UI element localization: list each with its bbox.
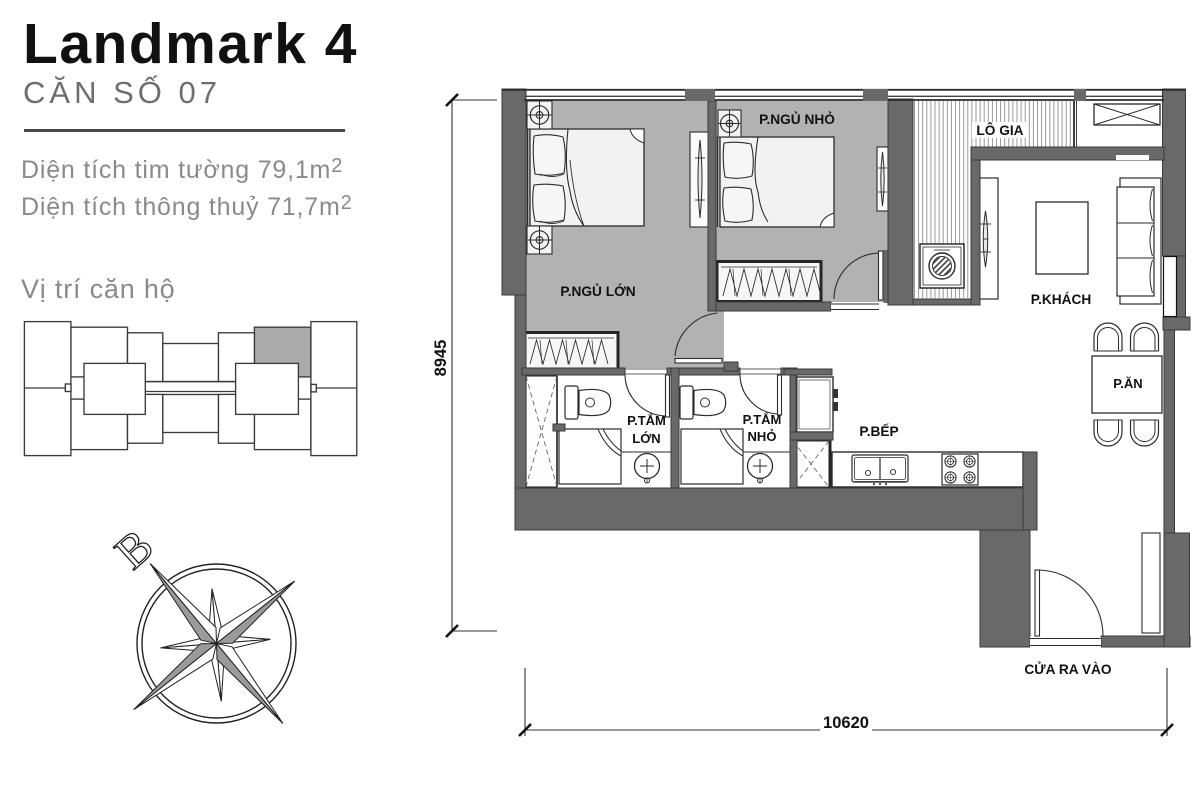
svg-text:P.KHÁCH: P.KHÁCH (1031, 292, 1092, 307)
svg-text:10620: 10620 (823, 714, 869, 732)
svg-text:CỬA RA VÀO: CỬA RA VÀO (1024, 662, 1111, 677)
svg-text:NHỎ: NHỎ (748, 429, 777, 444)
svg-text:P.TẮM: P.TẮM (627, 413, 666, 428)
svg-text:P.NGỦ NHỎ: P.NGỦ NHỎ (759, 112, 835, 127)
svg-text:P.ĂN: P.ĂN (1113, 376, 1142, 391)
svg-text:P.NGỦ LỚN: P.NGỦ LỚN (560, 284, 635, 299)
svg-text:LÔ GIA: LÔ GIA (976, 123, 1023, 138)
svg-text:P.TẮM: P.TẮM (743, 412, 782, 427)
svg-text:8945: 8945 (432, 340, 450, 377)
svg-text:LỚN: LỚN (632, 431, 660, 446)
svg-text:P.BẾP: P.BẾP (859, 424, 898, 439)
